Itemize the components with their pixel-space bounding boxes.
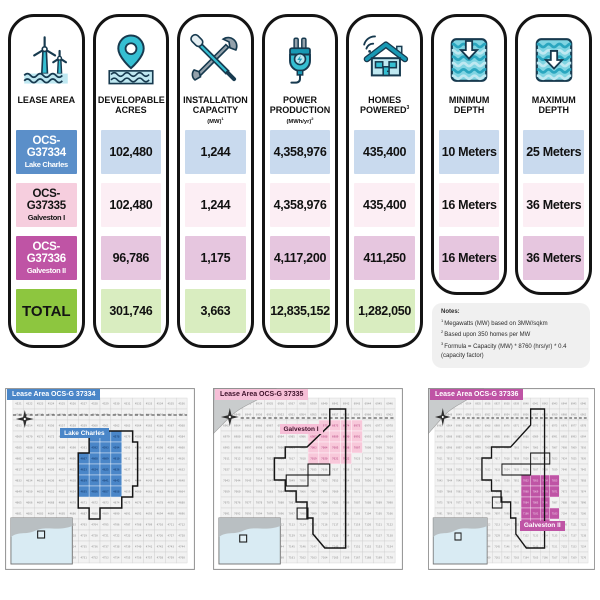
svg-text:4743: 4743 [168, 544, 175, 548]
svg-text:4753: 4753 [102, 555, 109, 559]
svg-text:7167: 7167 [552, 555, 558, 559]
svg-text:4531: 4531 [124, 401, 131, 405]
svg-text:7044: 7044 [446, 478, 452, 482]
svg-text:4522: 4522 [26, 401, 33, 405]
svg-text:4651: 4651 [37, 489, 44, 493]
svg-text:7012: 7012 [446, 456, 452, 460]
svg-text:7087: 7087 [552, 500, 558, 504]
svg-text:4737: 4737 [102, 544, 109, 548]
svg-text:4656: 4656 [91, 489, 98, 493]
svg-text:6938: 6938 [504, 401, 510, 405]
svg-text:4677: 4677 [146, 500, 153, 504]
svg-text:4532: 4532 [135, 401, 142, 405]
svg-text:6990: 6990 [542, 434, 548, 438]
svg-text:4676: 4676 [135, 500, 142, 504]
svg-text:7010: 7010 [580, 445, 586, 449]
svg-text:4603: 4603 [37, 456, 44, 460]
svg-text:7092: 7092 [446, 511, 452, 515]
svg-text:4669: 4669 [59, 500, 66, 504]
svg-text:4631: 4631 [168, 467, 175, 471]
lease-blocks-grid: 6931693269336934693569366937693869396940… [213, 388, 403, 570]
svg-text:7075: 7075 [437, 500, 443, 504]
svg-text:4634: 4634 [26, 478, 33, 482]
svg-text:7063: 7063 [475, 489, 481, 493]
svg-text:7000: 7000 [485, 445, 491, 449]
svg-text:7032: 7032 [278, 467, 285, 471]
svg-text:4533: 4533 [146, 401, 153, 405]
svg-text:6971: 6971 [513, 423, 519, 427]
svg-text:6986: 6986 [299, 434, 306, 438]
svg-text:4525: 4525 [59, 401, 66, 405]
svg-text:4613: 4613 [146, 456, 153, 460]
svg-text:6953: 6953 [494, 412, 500, 416]
svg-text:6975: 6975 [354, 423, 361, 427]
svg-text:4643: 4643 [124, 478, 131, 482]
tools-icon [186, 25, 244, 95]
data-columns: LEASE AREA OCS-G37334 Lake Charles OCS-G… [8, 14, 592, 348]
svg-text:4726: 4726 [157, 533, 164, 537]
svg-text:7055: 7055 [552, 478, 558, 482]
svg-text:7132: 7132 [321, 533, 328, 537]
svg-text:7047: 7047 [475, 478, 481, 482]
svg-text:6978: 6978 [580, 423, 586, 427]
svg-text:4709: 4709 [146, 522, 153, 526]
svg-text:4598: 4598 [157, 445, 164, 449]
svg-text:7135: 7135 [552, 533, 558, 537]
svg-text:7146: 7146 [504, 544, 510, 548]
svg-text:6983: 6983 [267, 434, 274, 438]
map-title: Lease Area OCS-G 37336 [430, 389, 523, 400]
svg-text:6953: 6953 [288, 412, 295, 416]
svg-text:7078: 7078 [466, 500, 472, 504]
svg-text:7019: 7019 [310, 456, 317, 460]
svg-text:6960: 6960 [561, 412, 567, 416]
svg-text:7075: 7075 [223, 500, 230, 504]
svg-text:7027: 7027 [223, 467, 230, 471]
svg-text:7076: 7076 [446, 500, 452, 504]
svg-text:6982: 6982 [466, 434, 472, 438]
svg-text:4555: 4555 [37, 423, 44, 427]
svg-text:4664: 4664 [178, 489, 185, 493]
svg-text:6940: 6940 [523, 401, 529, 405]
map-title: Lease Area OCS-G 37334 [7, 389, 100, 400]
svg-text:6973: 6973 [332, 423, 339, 427]
svg-text:6936: 6936 [485, 401, 491, 405]
svg-text:4725: 4725 [146, 533, 153, 537]
area-label: Lake Charles [60, 428, 108, 438]
svg-text:6988: 6988 [321, 434, 328, 438]
svg-text:7060: 7060 [234, 489, 241, 493]
svg-text:4674: 4674 [113, 500, 120, 504]
svg-text:6945: 6945 [376, 401, 383, 405]
homes-galveston-1: 435,400 [354, 183, 415, 227]
svg-text:7079: 7079 [267, 500, 274, 504]
svg-text:7079: 7079 [475, 500, 481, 504]
svg-text:6935: 6935 [267, 401, 274, 405]
svg-text:6991: 6991 [354, 434, 361, 438]
svg-text:4721: 4721 [102, 533, 109, 537]
svg-text:7086: 7086 [542, 500, 548, 504]
svg-text:4597: 4597 [146, 445, 153, 449]
svg-text:6986: 6986 [504, 434, 510, 438]
svg-text:4666: 4666 [26, 500, 33, 504]
lease-area-header: LEASE AREA [17, 95, 75, 105]
svg-text:7015: 7015 [475, 456, 481, 460]
svg-text:4673: 4673 [102, 500, 109, 504]
svg-text:4582: 4582 [157, 434, 164, 438]
svg-text:4706: 4706 [113, 522, 120, 526]
svg-text:4599: 4599 [168, 445, 175, 449]
svg-text:4542: 4542 [70, 412, 77, 416]
column-lease-area: LEASE AREA OCS-G37334 Lake Charles OCS-G… [8, 14, 85, 348]
svg-text:7060: 7060 [446, 489, 452, 493]
svg-text:7169: 7169 [376, 555, 383, 559]
svg-text:4728: 4728 [178, 533, 185, 537]
svg-text:4540: 4540 [48, 412, 55, 416]
svg-text:4641: 4641 [102, 478, 109, 482]
svg-text:7117: 7117 [332, 522, 339, 526]
svg-text:4530: 4530 [113, 401, 120, 405]
svg-text:4580: 4580 [135, 434, 142, 438]
svg-text:4668: 4668 [48, 500, 55, 504]
svg-text:4751: 4751 [80, 555, 87, 559]
svg-text:7122: 7122 [580, 522, 586, 526]
svg-text:6995: 6995 [223, 445, 230, 449]
svg-text:7129: 7129 [288, 533, 295, 537]
svg-text:4723: 4723 [124, 533, 131, 537]
svg-text:4536: 4536 [178, 401, 185, 405]
svg-text:4604: 4604 [48, 456, 55, 460]
svg-text:7119: 7119 [354, 522, 361, 526]
connected-home-icon [356, 25, 414, 95]
svg-text:7154: 7154 [386, 544, 393, 548]
svg-text:6980: 6980 [234, 434, 241, 438]
svg-text:4655: 4655 [80, 489, 87, 493]
svg-text:7035: 7035 [513, 467, 519, 471]
svg-text:4636: 4636 [48, 478, 55, 482]
max-depth-galveston-2: 36 Meters [523, 236, 584, 280]
svg-text:7050: 7050 [504, 478, 510, 482]
svg-text:4638: 4638 [70, 478, 77, 482]
svg-text:4546: 4546 [113, 412, 120, 416]
svg-text:7074: 7074 [580, 489, 586, 493]
svg-text:7083: 7083 [513, 500, 519, 504]
svg-text:4586: 4586 [26, 445, 33, 449]
svg-text:6974: 6974 [542, 423, 548, 427]
svg-text:7055: 7055 [354, 478, 361, 482]
note-1: 1Megawatts (MW) based on 3MW/sqkm [441, 318, 581, 330]
svg-text:6981: 6981 [245, 434, 252, 438]
svg-text:7136: 7136 [365, 533, 372, 537]
lease-blocks-grid: 4521452245234524452545264527452845294530… [5, 388, 195, 570]
svg-text:6962: 6962 [386, 412, 393, 416]
svg-text:7059: 7059 [223, 489, 230, 493]
svg-text:7134: 7134 [542, 533, 548, 537]
svg-text:7017: 7017 [494, 456, 500, 460]
column-installation-capacity: INSTALLATION CAPACITY (MW)1 1,244 1,244 … [177, 14, 254, 348]
svg-text:4568: 4568 [178, 423, 185, 427]
svg-text:7081: 7081 [494, 500, 500, 504]
svg-text:7130: 7130 [504, 533, 510, 537]
svg-text:6996: 6996 [446, 445, 452, 449]
svg-text:7161: 7161 [288, 555, 295, 559]
svg-text:4614: 4614 [157, 456, 164, 460]
svg-text:6994: 6994 [580, 434, 586, 438]
svg-text:7093: 7093 [456, 511, 462, 515]
svg-text:7135: 7135 [354, 533, 361, 537]
svg-text:7007: 7007 [354, 445, 361, 449]
svg-text:6943: 6943 [552, 401, 558, 405]
svg-text:6966: 6966 [466, 423, 472, 427]
svg-text:4712: 4712 [178, 522, 185, 526]
svg-text:7053: 7053 [332, 478, 339, 482]
svg-text:7051: 7051 [310, 478, 317, 482]
svg-text:7030: 7030 [256, 467, 263, 471]
svg-text:4524: 4524 [48, 401, 55, 405]
svg-text:6943: 6943 [354, 401, 361, 405]
svg-text:4684: 4684 [48, 511, 55, 515]
acres-lake-charles: 102,480 [101, 130, 162, 174]
svg-text:4572: 4572 [48, 434, 55, 438]
svg-text:4581: 4581 [146, 434, 153, 438]
svg-text:7029: 7029 [245, 467, 252, 471]
svg-text:4692: 4692 [135, 511, 142, 515]
svg-text:4609: 4609 [102, 456, 109, 460]
svg-text:4639: 4639 [80, 478, 87, 482]
svg-text:4685: 4685 [59, 511, 66, 515]
svg-text:7044: 7044 [234, 478, 241, 482]
notes-box: Notes: 1Megawatts (MW) based on 3MW/sqkm… [432, 303, 590, 368]
svg-text:4722: 4722 [113, 533, 120, 537]
svg-text:7151: 7151 [354, 544, 361, 548]
svg-text:4708: 4708 [135, 522, 142, 526]
svg-text:7064: 7064 [485, 489, 491, 493]
svg-text:6946: 6946 [580, 401, 586, 405]
svg-text:7113: 7113 [494, 522, 500, 526]
svg-text:6935: 6935 [475, 401, 481, 405]
svg-text:7059: 7059 [437, 489, 443, 493]
svg-text:4553: 4553 [15, 423, 22, 427]
svg-text:4611: 4611 [124, 456, 131, 460]
svg-text:6956: 6956 [523, 412, 529, 416]
svg-text:7013: 7013 [245, 456, 252, 460]
svg-text:7037: 7037 [533, 467, 539, 471]
svg-text:6952: 6952 [485, 412, 491, 416]
svg-text:6939: 6939 [513, 401, 519, 405]
svg-text:7014: 7014 [466, 456, 472, 460]
svg-text:7121: 7121 [376, 522, 383, 526]
svg-text:6949: 6949 [245, 412, 252, 416]
svg-text:6965: 6965 [245, 423, 252, 427]
svg-text:7170: 7170 [386, 555, 393, 559]
svg-text:4538: 4538 [26, 412, 33, 416]
svg-text:4693: 4693 [146, 511, 153, 515]
svg-text:4758: 4758 [157, 555, 164, 559]
svg-text:4563: 4563 [124, 423, 131, 427]
svg-text:6967: 6967 [475, 423, 481, 427]
power-production-unit: (MWh/yr)2 [287, 116, 314, 125]
svg-text:6977: 6977 [376, 423, 383, 427]
svg-text:4705: 4705 [102, 522, 109, 526]
svg-text:7040: 7040 [561, 467, 567, 471]
svg-text:7058: 7058 [580, 478, 586, 482]
svg-text:4661: 4661 [146, 489, 153, 493]
svg-text:7145: 7145 [494, 544, 500, 548]
svg-text:7090: 7090 [580, 500, 586, 504]
svg-text:4724: 4724 [135, 533, 142, 537]
svg-text:7168: 7168 [561, 555, 567, 559]
svg-text:4642: 4642 [113, 478, 120, 482]
svg-text:6982: 6982 [256, 434, 263, 438]
svg-text:4645: 4645 [146, 478, 153, 482]
svg-text:4711: 4711 [168, 522, 175, 526]
svg-text:7164: 7164 [321, 555, 328, 559]
svg-text:7102: 7102 [542, 511, 548, 515]
svg-text:7095: 7095 [267, 511, 274, 515]
max-depth-galveston-1: 36 Meters [523, 183, 584, 227]
svg-text:6959: 6959 [552, 412, 558, 416]
svg-text:4682: 4682 [26, 511, 33, 515]
production-lake-charles: 4,358,976 [270, 130, 331, 174]
svg-text:7035: 7035 [310, 467, 317, 471]
svg-text:6976: 6976 [365, 423, 372, 427]
production-galveston-2: 4,117,200 [270, 236, 331, 280]
svg-text:4683: 4683 [37, 511, 44, 515]
svg-text:6992: 6992 [561, 434, 567, 438]
svg-text:7032: 7032 [485, 467, 491, 471]
svg-text:6989: 6989 [332, 434, 339, 438]
svg-text:7152: 7152 [561, 544, 567, 548]
svg-text:4647: 4647 [168, 478, 175, 482]
svg-text:7021: 7021 [533, 456, 539, 460]
svg-text:4564: 4564 [135, 423, 142, 427]
svg-text:4659: 4659 [124, 489, 131, 493]
svg-text:6973: 6973 [533, 423, 539, 427]
svg-text:7146: 7146 [299, 544, 306, 548]
svg-text:7081: 7081 [288, 500, 295, 504]
svg-text:7018: 7018 [299, 456, 306, 460]
wind-turbines-icon [17, 25, 75, 95]
svg-text:7099: 7099 [513, 511, 519, 515]
svg-text:6993: 6993 [376, 434, 383, 438]
svg-text:7170: 7170 [580, 555, 586, 559]
svg-text:4565: 4565 [146, 423, 153, 427]
min-depth-galveston-2: 16 Meters [439, 236, 500, 280]
svg-text:6961: 6961 [376, 412, 383, 416]
svg-text:4654: 4654 [70, 489, 77, 493]
svg-text:6959: 6959 [354, 412, 361, 416]
svg-text:4719: 4719 [80, 533, 87, 537]
svg-text:4551: 4551 [168, 412, 175, 416]
svg-text:4535: 4535 [168, 401, 175, 405]
svg-text:4544: 4544 [91, 412, 98, 416]
svg-text:7147: 7147 [310, 544, 317, 548]
svg-text:6937: 6937 [494, 401, 500, 405]
acres-galveston-1: 102,480 [101, 183, 162, 227]
map-lease-area-ocs-g37334: 4521452245234524452545264527452845294530… [5, 388, 195, 570]
svg-text:6949: 6949 [456, 412, 462, 416]
svg-text:6992: 6992 [365, 434, 372, 438]
svg-text:7062: 7062 [256, 489, 263, 493]
svg-text:7050: 7050 [299, 478, 306, 482]
svg-text:4616: 4616 [178, 456, 185, 460]
svg-text:4735: 4735 [80, 544, 87, 548]
svg-text:6954: 6954 [504, 412, 510, 416]
svg-text:7165: 7165 [332, 555, 339, 559]
svg-text:6939: 6939 [310, 401, 317, 405]
svg-text:7036: 7036 [523, 467, 529, 471]
svg-text:7028: 7028 [446, 467, 452, 471]
svg-text:6997: 6997 [456, 445, 462, 449]
svg-text:7130: 7130 [299, 533, 306, 537]
svg-text:4543: 4543 [80, 412, 87, 416]
svg-text:6954: 6954 [299, 412, 306, 416]
svg-text:6995: 6995 [437, 445, 443, 449]
svg-text:4672: 4672 [91, 500, 98, 504]
svg-text:4635: 4635 [37, 478, 44, 482]
svg-text:4637: 4637 [59, 478, 66, 482]
svg-text:4621: 4621 [59, 467, 66, 471]
svg-text:6934: 6934 [256, 401, 263, 405]
svg-text:7166: 7166 [343, 555, 350, 559]
svg-text:7054: 7054 [542, 478, 548, 482]
svg-text:4691: 4691 [124, 511, 131, 515]
svg-text:7164: 7164 [523, 555, 529, 559]
svg-text:4690: 4690 [113, 511, 120, 515]
svg-text:7057: 7057 [376, 478, 383, 482]
svg-text:7017: 7017 [288, 456, 295, 460]
svg-text:6950: 6950 [466, 412, 472, 416]
svg-text:7084: 7084 [523, 500, 529, 504]
svg-text:6975: 6975 [552, 423, 558, 427]
svg-text:7106: 7106 [386, 511, 393, 515]
svg-text:7092: 7092 [234, 511, 241, 515]
svg-text:7113: 7113 [288, 522, 295, 526]
svg-text:4671: 4671 [80, 500, 87, 504]
svg-text:7154: 7154 [580, 544, 586, 548]
svg-text:7162: 7162 [299, 555, 306, 559]
svg-text:7129: 7129 [494, 533, 500, 537]
svg-text:4602: 4602 [26, 456, 33, 460]
svg-text:7098: 7098 [504, 511, 510, 515]
svg-text:7093: 7093 [245, 511, 252, 515]
svg-text:7063: 7063 [267, 489, 274, 493]
svg-text:4630: 4630 [157, 467, 164, 471]
svg-text:7147: 7147 [513, 544, 519, 548]
svg-text:4541: 4541 [59, 412, 66, 416]
svg-text:4696: 4696 [178, 511, 185, 515]
svg-text:4584: 4584 [178, 434, 185, 438]
svg-text:4624: 4624 [91, 467, 98, 471]
svg-text:4523: 4523 [37, 401, 44, 405]
svg-text:4617: 4617 [15, 467, 22, 471]
svg-text:4589: 4589 [59, 445, 66, 449]
svg-text:7025: 7025 [571, 456, 577, 460]
svg-text:7030: 7030 [466, 467, 472, 471]
svg-text:4759: 4759 [168, 555, 175, 559]
svg-text:7098: 7098 [299, 511, 306, 515]
svg-text:7020: 7020 [523, 456, 529, 460]
svg-text:7071: 7071 [552, 489, 558, 493]
svg-text:6999: 6999 [475, 445, 481, 449]
svg-text:6980: 6980 [446, 434, 452, 438]
svg-text:6961: 6961 [571, 412, 577, 416]
svg-text:7116: 7116 [321, 522, 328, 526]
svg-text:4665: 4665 [15, 500, 22, 504]
svg-text:7057: 7057 [571, 478, 577, 482]
area-label: Galveston I [280, 424, 323, 434]
svg-text:4578: 4578 [113, 434, 120, 438]
